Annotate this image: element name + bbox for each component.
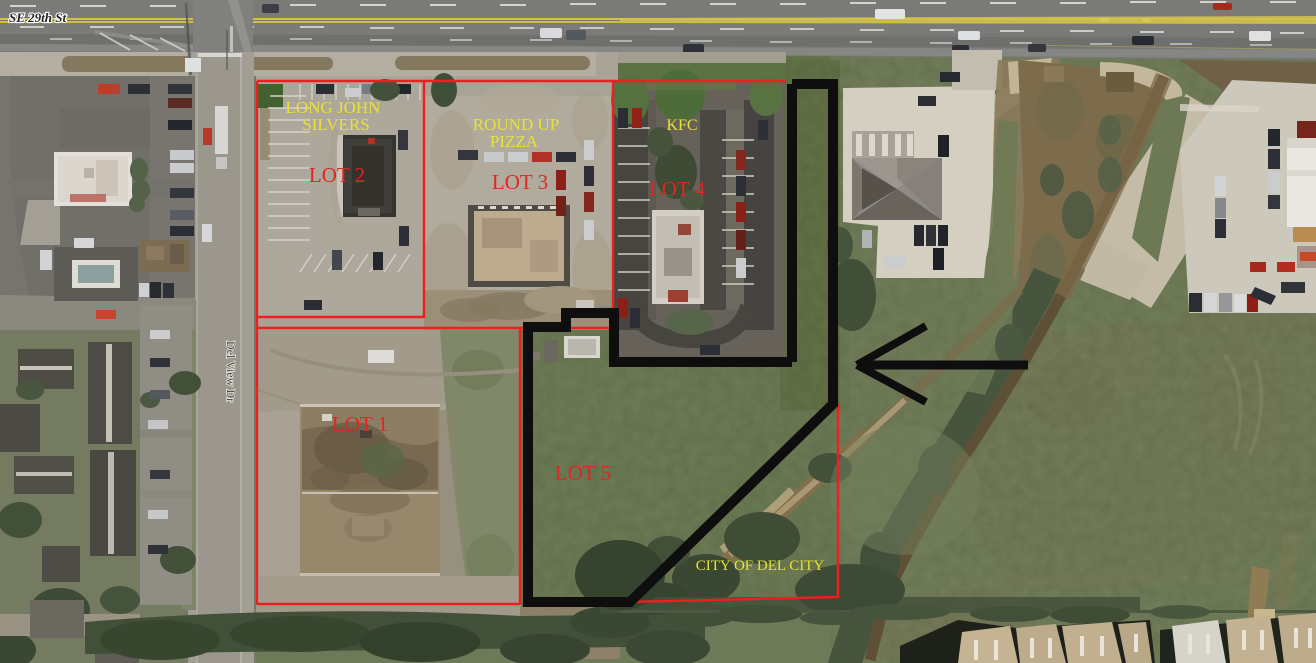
svg-text:PIZZA: PIZZA (490, 132, 539, 151)
svg-text:SILVERS: SILVERS (302, 115, 369, 134)
svg-text:LOT 2: LOT 2 (309, 163, 365, 187)
svg-text:LOT 1: LOT 1 (332, 412, 388, 436)
svg-text:SE 29th St: SE 29th St (9, 10, 66, 25)
svg-text:LOT 3: LOT 3 (492, 170, 548, 194)
svg-text:CITY OF DEL CITY: CITY OF DEL CITY (696, 558, 825, 574)
svg-text:LOT 5: LOT 5 (555, 461, 611, 485)
svg-text:Del View Dr: Del View Dr (224, 341, 238, 402)
svg-text:LOT 4: LOT 4 (649, 177, 706, 201)
svg-text:KFC: KFC (666, 117, 697, 134)
